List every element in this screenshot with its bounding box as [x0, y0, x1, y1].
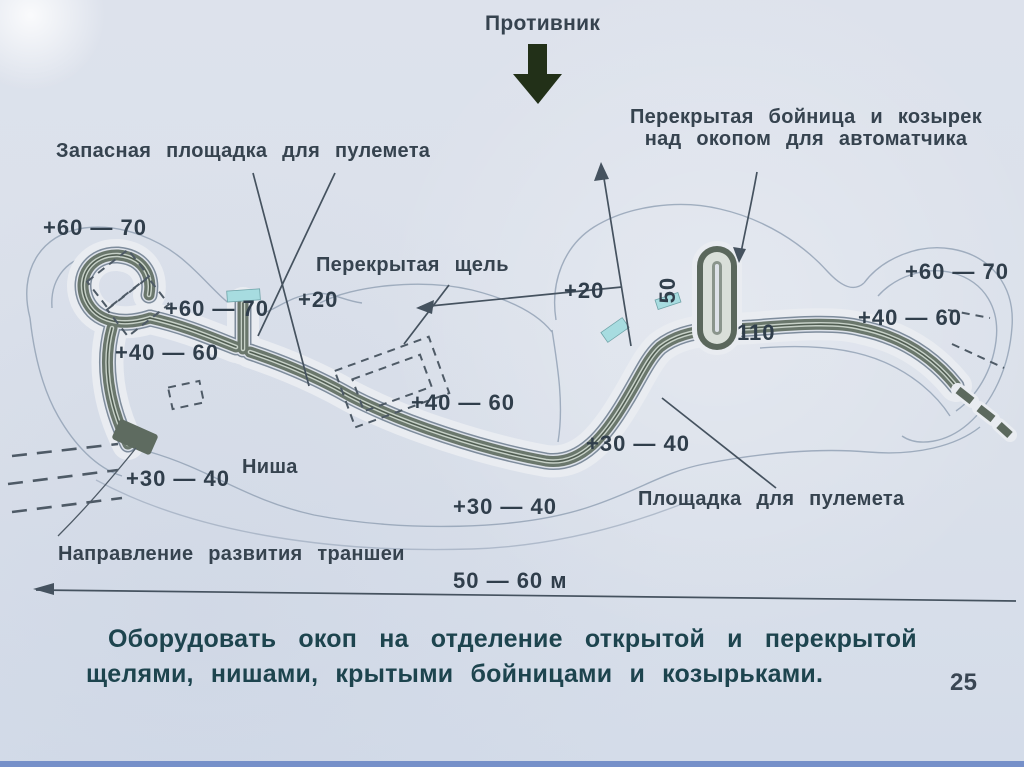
depth-mark-center: +40 — 60 [411, 391, 515, 415]
covered-embrasure-line1: Перекрытая бойница и козырек [612, 106, 1000, 128]
leader-arrows [33, 162, 1016, 601]
page-number: 25 [950, 670, 977, 696]
trench-band [83, 255, 1010, 462]
depth-mark-right-mid: +40 — 60 [858, 306, 962, 330]
covered-embrasure-label: Перекрытая бойница и козырек над окопом … [612, 106, 1000, 150]
caption-line1: Оборудовать окоп на отделение открытой и… [108, 626, 917, 654]
spur-length-mark: 110 [737, 321, 776, 345]
trench-tail-dashes [958, 390, 1010, 435]
niche-label: Ниша [242, 456, 298, 478]
depth-mark-center-left: +20 [298, 288, 338, 312]
trench-direction-label: Направление развития траншеи [58, 543, 405, 565]
depth-mark-left-mid: +60 — 70 [165, 297, 269, 321]
depth-mark-center-right: +20 [564, 279, 604, 303]
slide-bottom-border [0, 761, 1024, 767]
covered-embrasure-line2: над окопом для автоматчика [612, 128, 1000, 150]
depth-mark-bottom-right: +30 — 40 [586, 432, 690, 456]
depth-mark-left-top: +60 — 70 [43, 216, 147, 240]
depth-mark-bottom-left: +30 — 40 [126, 467, 230, 491]
covered-slit-label: Перекрытая щель [316, 254, 509, 276]
front-width-mark: 50 — 60 м [453, 569, 568, 593]
depth-mark-left-lower: +40 — 60 [115, 341, 219, 365]
depth-mark-right-top: +60 — 70 [905, 260, 1009, 284]
caption-line2: щелями, нишами, крытыми бойницами и козы… [86, 661, 823, 689]
slide: Противник Запасная площадка для пулемета… [0, 0, 1024, 767]
spur-width-mark: 50 [656, 277, 680, 303]
enemy-label: Противник [485, 12, 600, 35]
enemy-direction-arrow-icon [513, 44, 562, 104]
depth-mark-bottom-center: +30 — 40 [453, 495, 557, 519]
mg-platform-label: Площадка для пулемета [638, 488, 904, 510]
reserve-mg-platform-label: Запасная площадка для пулемета [56, 140, 430, 162]
